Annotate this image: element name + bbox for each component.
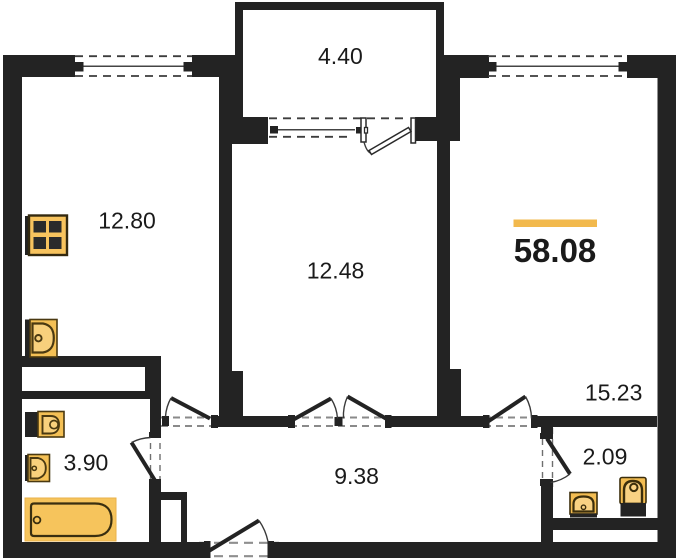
svg-text:15.23: 15.23 <box>585 380 643 406</box>
svg-text:12.80: 12.80 <box>98 208 156 234</box>
svg-text:2.09: 2.09 <box>583 444 628 470</box>
svg-text:9.38: 9.38 <box>334 463 379 489</box>
svg-text:12.48: 12.48 <box>307 258 365 284</box>
svg-text:4.40: 4.40 <box>318 43 363 69</box>
svg-text:58.08: 58.08 <box>514 232 597 269</box>
svg-text:3.90: 3.90 <box>64 450 109 476</box>
